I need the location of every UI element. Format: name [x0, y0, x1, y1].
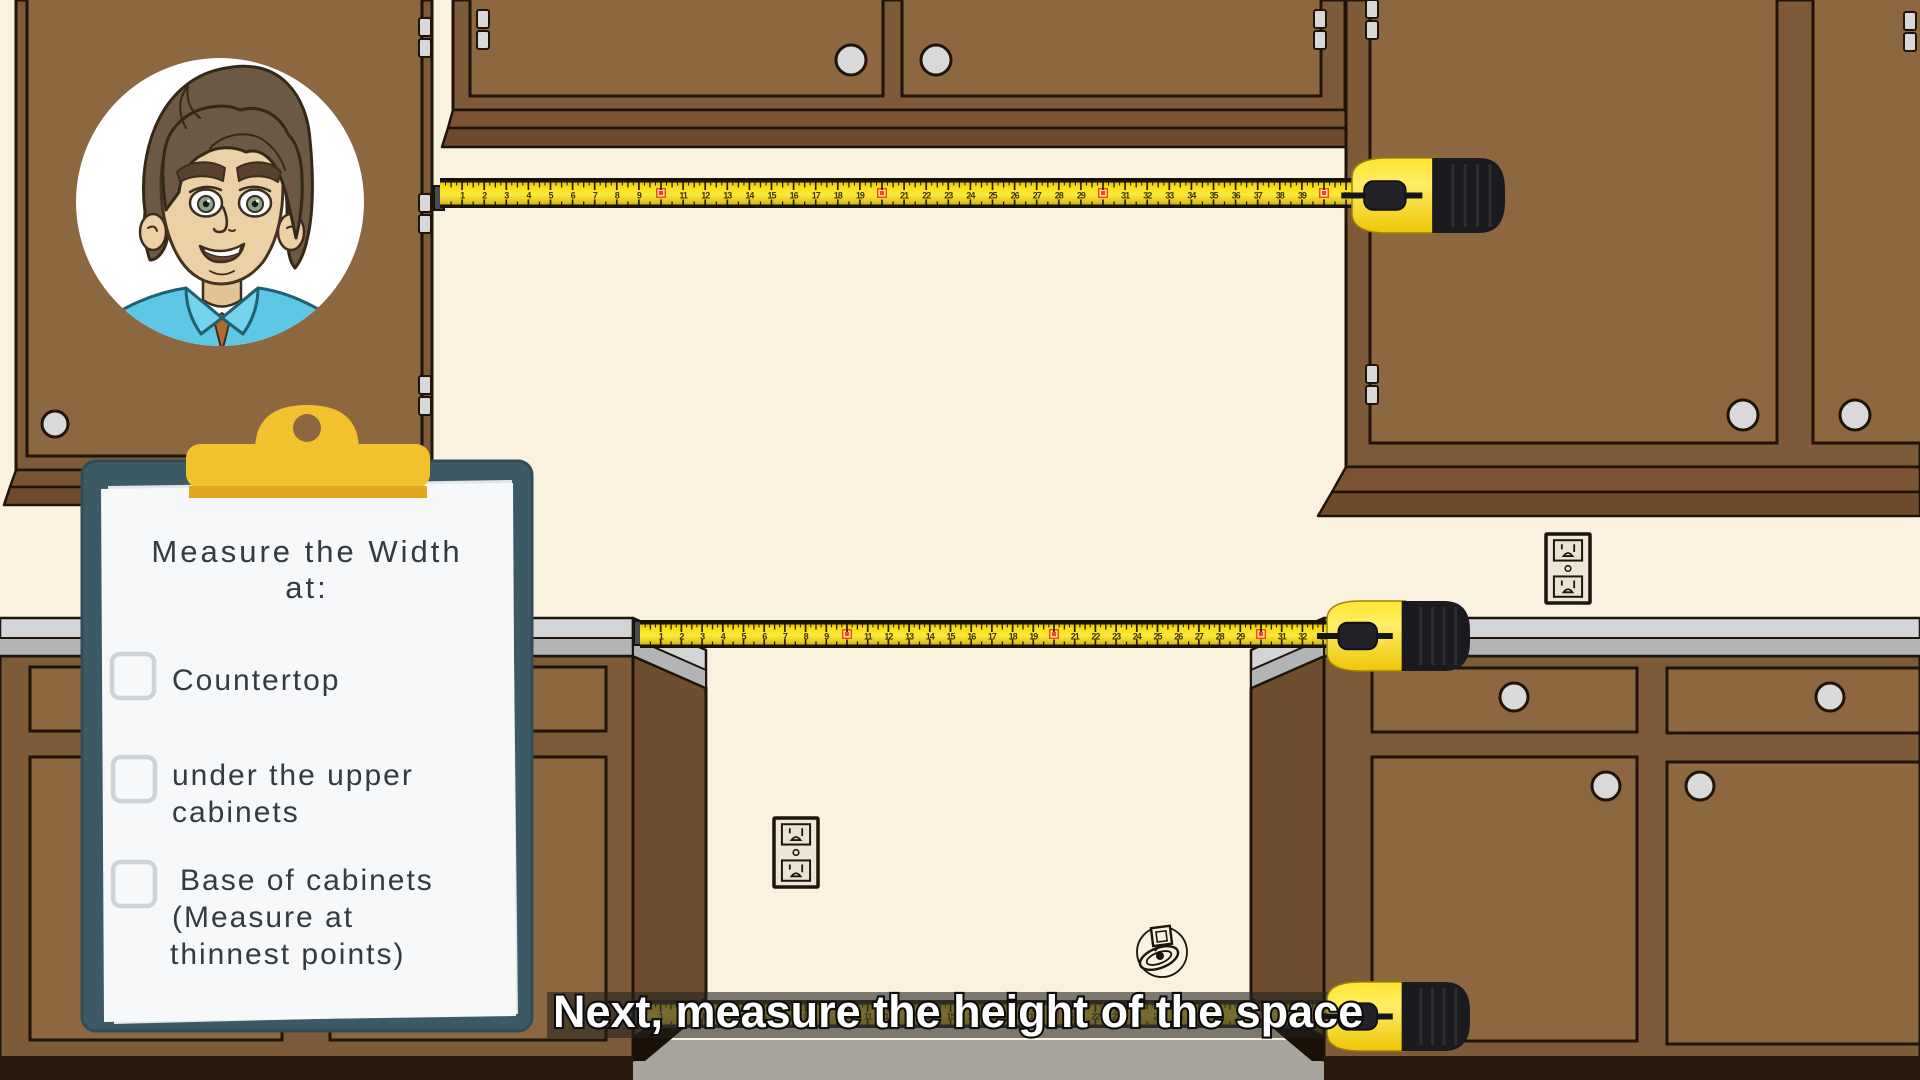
svg-text:thinnest points): thinnest points)	[170, 938, 405, 971]
svg-text:16: 16	[967, 632, 976, 642]
svg-text:Base of cabinets: Base of cabinets	[180, 864, 434, 897]
svg-text:37: 37	[1254, 191, 1263, 201]
svg-text:17: 17	[988, 632, 997, 642]
svg-text:21: 21	[900, 191, 909, 201]
svg-text:29: 29	[1236, 632, 1245, 642]
svg-text:19: 19	[1029, 632, 1038, 642]
svg-text:15: 15	[767, 191, 776, 201]
svg-text:13: 13	[723, 191, 732, 201]
svg-text:27: 27	[1033, 191, 1042, 201]
svg-text:11: 11	[864, 632, 873, 642]
svg-text:21: 21	[1071, 632, 1080, 642]
svg-text:25: 25	[988, 191, 997, 201]
svg-text:38: 38	[1276, 191, 1285, 201]
svg-text:Measure the Width: Measure the Width	[151, 534, 462, 569]
svg-text:23: 23	[944, 191, 953, 201]
svg-text:25: 25	[1153, 632, 1162, 642]
svg-text:Next, measure the height of th: Next, measure the height of the space	[553, 986, 1363, 1037]
svg-text:22: 22	[1091, 632, 1100, 642]
svg-text:35: 35	[1209, 191, 1218, 201]
svg-text:16: 16	[790, 191, 799, 201]
svg-text:(Measure at: (Measure at	[172, 901, 354, 934]
svg-text:13: 13	[905, 632, 914, 642]
svg-text:18: 18	[1009, 632, 1018, 642]
svg-text:32: 32	[1298, 632, 1307, 642]
svg-text:31: 31	[1278, 632, 1287, 642]
svg-text:34: 34	[1187, 191, 1196, 201]
svg-text:29: 29	[1077, 191, 1086, 201]
svg-text:Countertop: Countertop	[172, 664, 340, 697]
svg-text:26: 26	[1174, 632, 1183, 642]
svg-text:39: 39	[1298, 191, 1307, 201]
svg-text:19: 19	[856, 191, 865, 201]
svg-text:31: 31	[1121, 191, 1130, 201]
svg-text:11: 11	[679, 191, 688, 201]
svg-text:under the upper: under the upper	[172, 759, 414, 792]
svg-text:33: 33	[1165, 191, 1174, 201]
svg-text:23: 23	[1112, 632, 1121, 642]
svg-text:24: 24	[966, 191, 975, 201]
svg-text:12: 12	[701, 191, 710, 201]
svg-text:24: 24	[1133, 632, 1142, 642]
svg-text:18: 18	[834, 191, 843, 201]
svg-text:28: 28	[1216, 632, 1225, 642]
svg-text:cabinets: cabinets	[172, 796, 300, 829]
svg-text:28: 28	[1055, 191, 1064, 201]
svg-text:14: 14	[926, 632, 935, 642]
svg-text:15: 15	[946, 632, 955, 642]
svg-text:26: 26	[1011, 191, 1020, 201]
svg-text:17: 17	[812, 191, 821, 201]
svg-text:27: 27	[1195, 632, 1204, 642]
svg-text:at:: at:	[285, 570, 328, 605]
svg-text:12: 12	[884, 632, 893, 642]
svg-text:22: 22	[922, 191, 931, 201]
svg-text:32: 32	[1143, 191, 1152, 201]
svg-text:14: 14	[745, 191, 754, 201]
svg-text:36: 36	[1232, 191, 1241, 201]
